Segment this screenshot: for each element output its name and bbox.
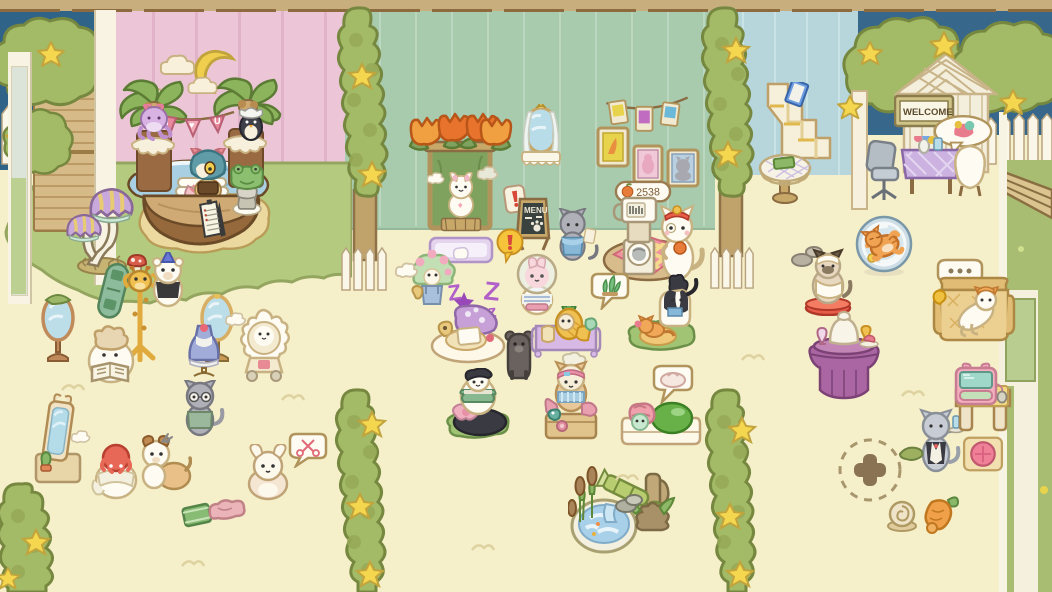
svg-text:♥: ♥ [189, 120, 194, 130]
svg-text:U: U [214, 116, 221, 126]
svg-text:MENU: MENU [524, 206, 548, 215]
